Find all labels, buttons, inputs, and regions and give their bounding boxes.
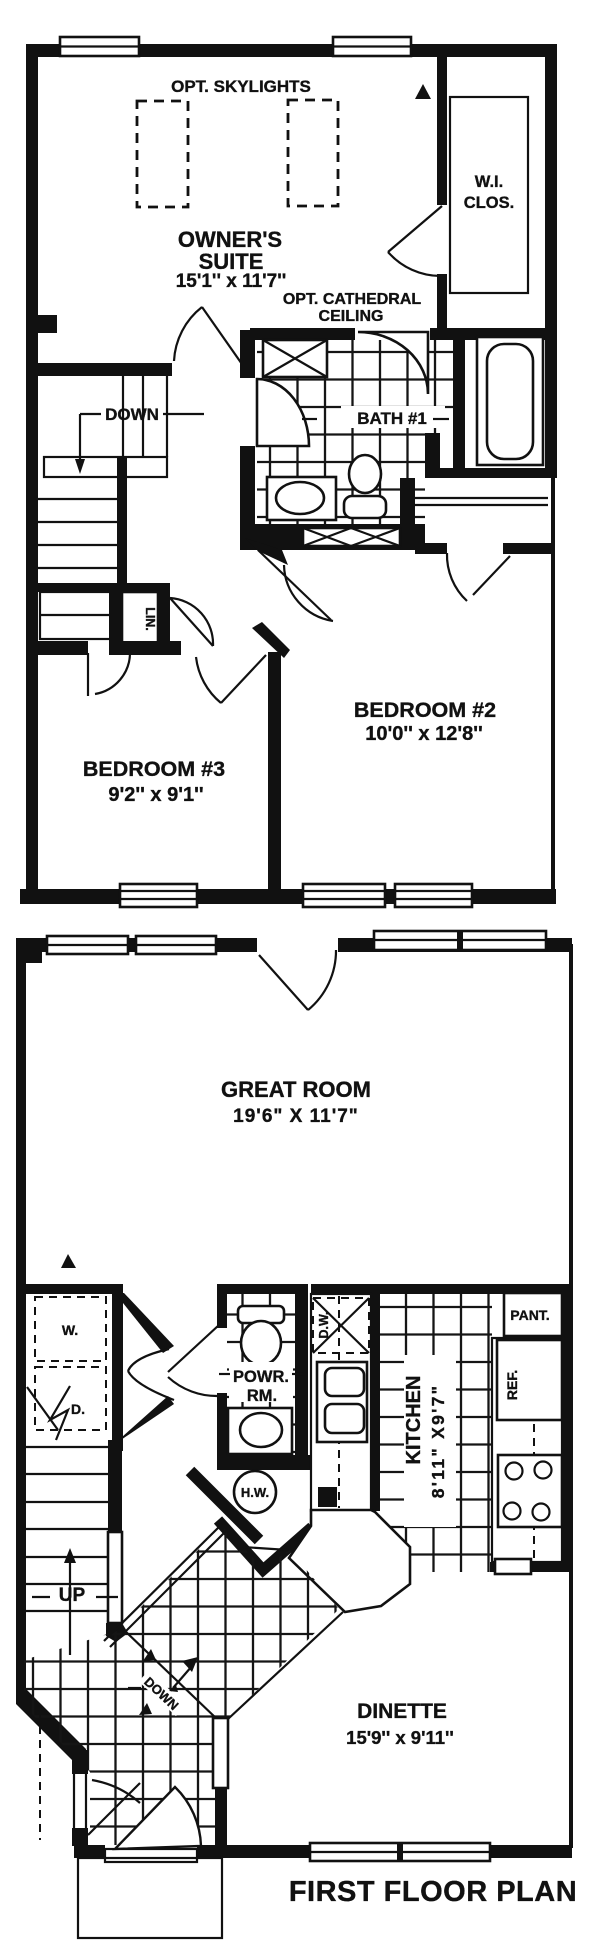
svg-text:BATH #1: BATH #1 <box>357 409 427 428</box>
svg-text:DINETTE: DINETTE <box>357 1700 447 1723</box>
svg-text:LIN.: LIN. <box>143 607 157 631</box>
svg-text:H.W.: H.W. <box>241 1485 269 1500</box>
svg-text:UP: UP <box>59 1585 86 1606</box>
svg-text:9'2'' x 9'1'': 9'2'' x 9'1'' <box>108 784 203 806</box>
svg-text:PANT.: PANT. <box>510 1307 549 1323</box>
svg-text:CLOS.: CLOS. <box>464 194 514 212</box>
svg-text:15'1'' x 11'7'': 15'1'' x 11'7'' <box>176 271 287 292</box>
svg-text:19'6" X 11'7": 19'6" X 11'7" <box>233 1106 359 1127</box>
svg-text:W.: W. <box>62 1322 78 1338</box>
svg-text:W.I.: W.I. <box>475 173 503 191</box>
svg-text:GREAT ROOM: GREAT ROOM <box>221 1077 371 1102</box>
svg-text:15'9'' x 9'11'': 15'9'' x 9'11'' <box>346 1727 454 1748</box>
svg-text:REF.: REF. <box>504 1370 520 1400</box>
svg-text:10'0'' x 12'8'': 10'0'' x 12'8'' <box>365 723 483 745</box>
svg-text:CEILING: CEILING <box>319 308 384 325</box>
svg-text:BEDROOM #3: BEDROOM #3 <box>83 757 225 781</box>
svg-text:D.: D. <box>71 1401 85 1417</box>
svg-text:OPT. SKYLIGHTS: OPT. SKYLIGHTS <box>171 77 311 96</box>
svg-text:FIRST FLOOR PLAN: FIRST FLOOR PLAN <box>289 1876 577 1908</box>
svg-text:RM.: RM. <box>247 1387 277 1405</box>
svg-text:BEDROOM #2: BEDROOM #2 <box>354 698 496 722</box>
svg-text:8'11" X9'7": 8'11" X9'7" <box>428 1384 448 1498</box>
svg-text:DOWN: DOWN <box>105 405 159 424</box>
svg-text:OPT. CATHEDRAL: OPT. CATHEDRAL <box>283 291 422 308</box>
svg-text:D.W.: D.W. <box>317 1311 331 1338</box>
svg-text:POWR.: POWR. <box>233 1368 289 1386</box>
svg-text:KITCHEN: KITCHEN <box>403 1376 425 1465</box>
